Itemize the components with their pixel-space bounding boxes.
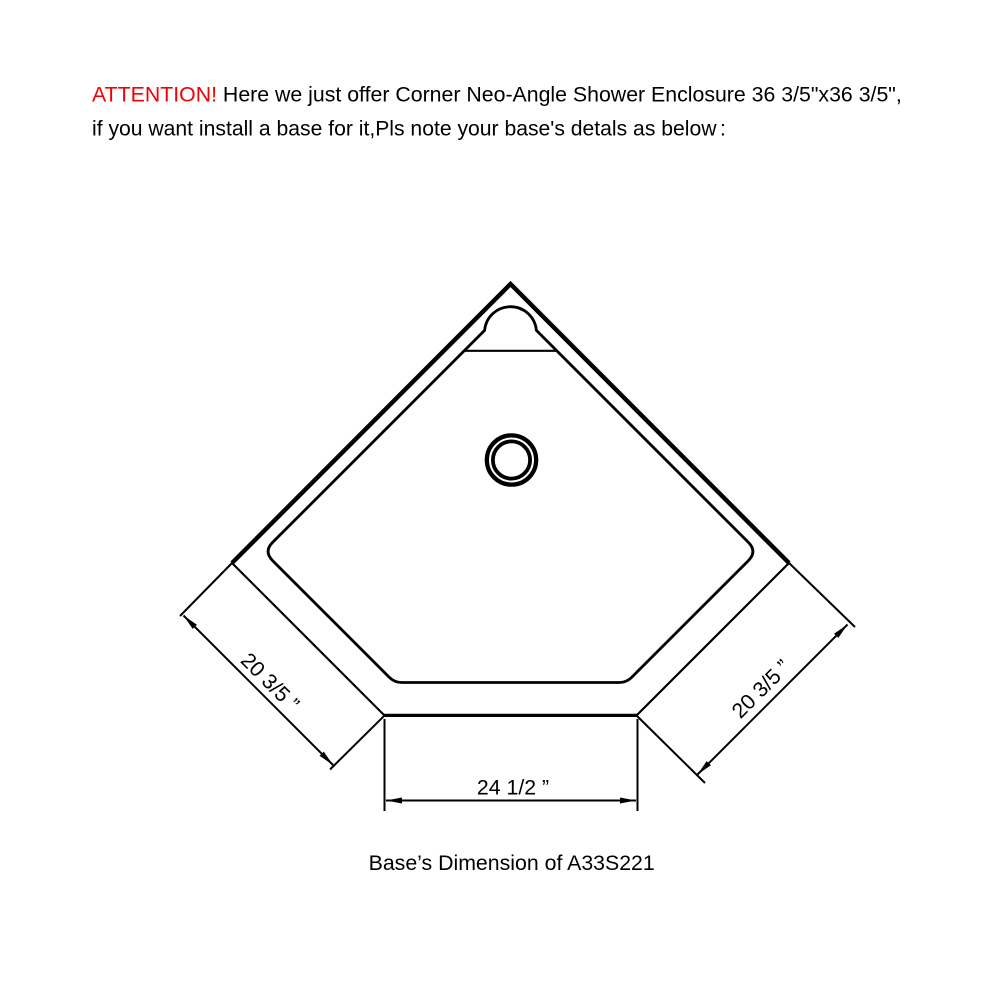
svg-text:Base’s Dimension of A33S221: Base’s Dimension of A33S221: [369, 851, 655, 875]
svg-text:24 1/2 ”: 24 1/2 ”: [477, 776, 549, 800]
svg-text:ATTENTION! Here we just offer: ATTENTION! Here we just offer Corner Neo…: [92, 83, 902, 107]
svg-text:if you want install a base for: if you want install a base for it,Pls no…: [92, 117, 726, 140]
